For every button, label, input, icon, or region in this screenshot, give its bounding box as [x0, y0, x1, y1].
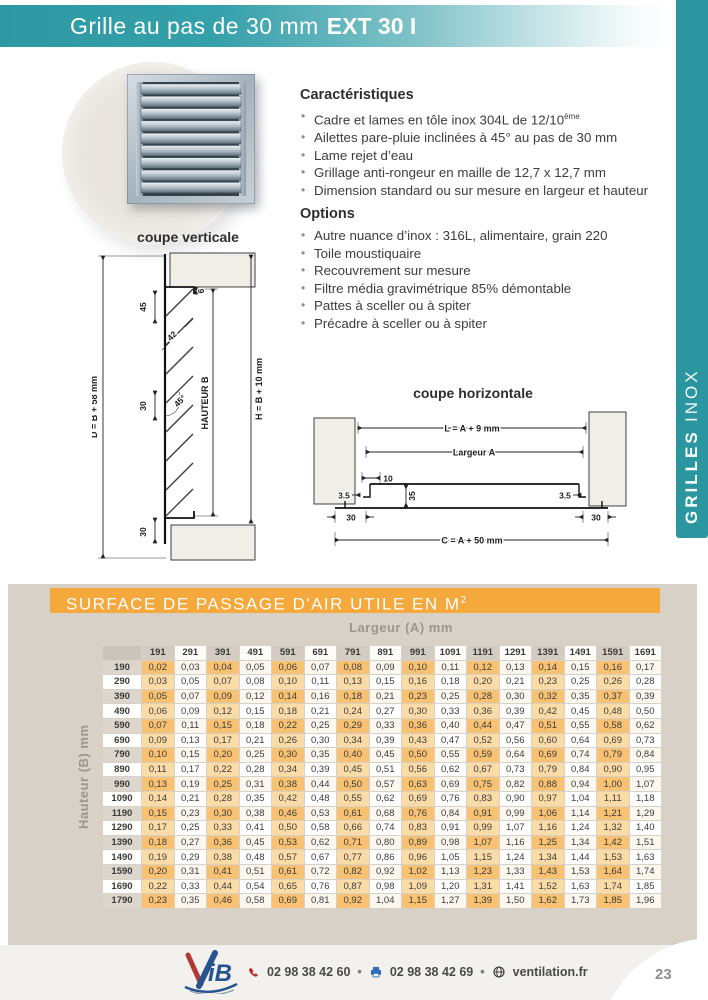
air-surface-cell: 0,08: [337, 661, 369, 675]
air-surface-cell: 0,96: [402, 850, 434, 864]
air-surface-cell: 0,79: [597, 748, 629, 762]
air-surface-cell: 0,58: [305, 821, 337, 835]
section-banner-sup: 2: [461, 595, 468, 606]
air-surface-cell: 0,61: [337, 807, 369, 821]
table-row: 2900,030,050,070,080,100,110,130,150,160…: [103, 675, 661, 689]
bullet-item: •Pattes à sceller ou à spiter: [300, 297, 680, 315]
bullet-item: •Dimension standard ou sur mesure en lar…: [300, 182, 680, 200]
air-surface-cell: 0,25: [175, 821, 207, 835]
air-surface-cell: 0,35: [565, 690, 597, 704]
air-surface-cell: 0,45: [370, 748, 402, 762]
row-header: 1390: [103, 836, 141, 850]
air-surface-cell: 1,74: [597, 880, 629, 894]
air-surface-cell: 1,27: [435, 894, 467, 908]
fax-icon: [369, 965, 383, 979]
air-surface-cell: 0,15: [370, 675, 402, 689]
air-surface-cell: 0,21: [500, 675, 532, 689]
table-row: 15900,200,310,410,510,610,720,820,921,02…: [103, 865, 661, 879]
air-surface-cell: 0,91: [467, 807, 499, 821]
air-surface-cell: 1,25: [532, 836, 564, 850]
air-surface-cell: 0,48: [597, 704, 629, 718]
table-row: 4900,060,090,120,150,180,210,240,270,300…: [103, 704, 661, 718]
table-row: 17900,230,350,460,580,690,810,921,041,15…: [103, 894, 661, 908]
table-row: 11900,150,230,300,380,460,530,610,680,76…: [103, 807, 661, 821]
side-tab-label-light: INOX: [682, 368, 701, 422]
air-surface-cell: 0,33: [175, 880, 207, 894]
air-surface-cell: 0,21: [240, 734, 272, 748]
air-surface-cell: 0,29: [337, 719, 369, 733]
air-surface-cell: 0,33: [207, 821, 239, 835]
air-surface-cell: 0,59: [467, 748, 499, 762]
air-surface-cell: 0,52: [467, 734, 499, 748]
air-surface-cell: 0,12: [207, 704, 239, 718]
row-header: 1290: [103, 821, 141, 835]
air-surface-cell: 0,03: [142, 675, 174, 689]
air-surface-cell: 0,09: [207, 690, 239, 704]
air-surface-cell: 0,25: [435, 690, 467, 704]
air-surface-cell: 0,13: [142, 777, 174, 791]
air-surface-cell: 1,40: [630, 821, 662, 835]
air-surface-cell: 0,08: [240, 675, 272, 689]
air-surface-cell: 0,38: [272, 777, 304, 791]
air-surface-cell: 0,35: [175, 894, 207, 908]
dim-label-outer-height: D = B + 58 mm: [92, 376, 99, 438]
air-surface-cell: 0,47: [435, 734, 467, 748]
air-surface-cell: 0,42: [272, 792, 304, 806]
bullet-item: •Toile moustiquaire: [300, 245, 680, 263]
table-row: 13900,180,270,360,450,530,620,710,800,89…: [103, 836, 661, 850]
air-surface-cell: 0,36: [207, 836, 239, 850]
air-surface-cell: 0,15: [565, 661, 597, 675]
air-surface-cell: 0,36: [467, 704, 499, 718]
bullet-icon: •: [301, 227, 305, 245]
air-surface-cell: 0,44: [467, 719, 499, 733]
air-surface-cell: 0,98: [435, 836, 467, 850]
air-surface-cell: 0,41: [240, 821, 272, 835]
air-surface-cell: 0,45: [240, 836, 272, 850]
page-number: 23: [655, 966, 672, 983]
air-surface-cell: 1,29: [630, 807, 662, 821]
row-header: 190: [103, 661, 141, 675]
air-surface-cell: 0,51: [532, 719, 564, 733]
air-surface-cell: 0,23: [142, 894, 174, 908]
dimension-lines: [98, 255, 251, 558]
air-surface-cell: 0,05: [175, 675, 207, 689]
table-corner-cell: [103, 646, 141, 660]
air-surface-cell: 0,40: [337, 748, 369, 762]
air-surface-cell: 0,39: [370, 734, 402, 748]
air-surface-cell: 1,07: [467, 836, 499, 850]
air-surface-cell: 0,53: [272, 836, 304, 850]
bullet-text: Ailettes pare-pluie inclinées à 45° au p…: [314, 130, 617, 145]
row-header: 1690: [103, 880, 141, 894]
horizontal-section-caption: coupe horizontale: [368, 385, 578, 401]
air-surface-cell: 1,16: [532, 821, 564, 835]
air-surface-cell: 0,92: [337, 894, 369, 908]
air-surface-cell: 0,15: [175, 748, 207, 762]
air-surface-cell: 0,17: [142, 821, 174, 835]
air-surface-cell: 0,73: [630, 734, 662, 748]
col-header: 1091: [435, 646, 467, 660]
col-header: 991: [402, 646, 434, 660]
air-surface-cell: 0,84: [565, 763, 597, 777]
air-surface-cell: 1,09: [402, 880, 434, 894]
row-header: 1190: [103, 807, 141, 821]
side-tab-label-bold: GRILLES: [682, 429, 701, 524]
air-surface-cell: 1,74: [630, 865, 662, 879]
dim-6: 6: [196, 288, 206, 293]
options-block: Options •Autre nuance d’inox : 316L, ali…: [300, 206, 680, 333]
air-surface-cell: 0,66: [337, 821, 369, 835]
bullet-item: •Cadre et lames en tôle inox 304L de 12/…: [300, 108, 680, 129]
air-surface-cell: 0,16: [305, 690, 337, 704]
bullet-item: •Lame rejet d’eau: [300, 147, 680, 165]
air-surface-cell: 0,55: [337, 792, 369, 806]
air-surface-cell: 0,25: [240, 748, 272, 762]
characteristics-title: Caractéristiques: [300, 87, 680, 103]
air-surface-cell: 0,30: [402, 704, 434, 718]
air-surface-cell: 0,34: [337, 734, 369, 748]
air-surface-cell: 1,11: [597, 792, 629, 806]
air-surface-cell: 1,51: [630, 836, 662, 850]
air-surface-cell: 0,35: [305, 748, 337, 762]
bullet-text: Pattes à sceller ou à spiter: [314, 298, 471, 313]
col-header: 291: [175, 646, 207, 660]
air-surface-cell: 0,64: [500, 748, 532, 762]
air-surface-cell: 0,19: [142, 850, 174, 864]
air-surface-cell: 0,57: [370, 777, 402, 791]
air-surface-cell: 0,19: [175, 777, 207, 791]
bullet-icon: •: [301, 164, 305, 182]
air-surface-cell: 1,63: [630, 850, 662, 864]
air-surface-cell: 0,28: [207, 792, 239, 806]
air-surface-cell: 0,26: [272, 734, 304, 748]
logo-ib-text: iB: [208, 960, 232, 987]
row-header: 1090: [103, 792, 141, 806]
air-surface-cell: 0,10: [402, 661, 434, 675]
air-surface-cell: 1,21: [597, 807, 629, 821]
air-surface-cell: 0,83: [402, 821, 434, 835]
row-header: 490: [103, 704, 141, 718]
air-surface-cell: 0,38: [240, 807, 272, 821]
air-surface-cell: 0,69: [272, 894, 304, 908]
air-surface-cell: 0,07: [175, 690, 207, 704]
air-surface-cell: 0,10: [272, 675, 304, 689]
air-surface-cell: 0,76: [305, 880, 337, 894]
air-surface-cell: 0,53: [305, 807, 337, 821]
air-surface-cell: 1,96: [630, 894, 662, 908]
air-surface-cell: 0,76: [402, 807, 434, 821]
air-surface-cell: 0,67: [467, 763, 499, 777]
air-surface-cell: 1,34: [565, 836, 597, 850]
air-surface-cell: 0,67: [305, 850, 337, 864]
air-surface-cell: 0,56: [402, 763, 434, 777]
air-surface-cell: 0,15: [142, 807, 174, 821]
dim-42: 42: [165, 329, 179, 343]
bullet-icon: •: [301, 245, 305, 263]
air-surface-cell: 0,50: [630, 704, 662, 718]
dim-3-5-left: 3.5: [338, 491, 350, 501]
air-surface-cell: 0,14: [142, 792, 174, 806]
table-row: 7900,100,150,200,250,300,350,400,450,500…: [103, 748, 661, 762]
air-surface-cell: 0,69: [402, 792, 434, 806]
air-surface-cell: 0,98: [370, 880, 402, 894]
air-surface-cell: 1,44: [565, 850, 597, 864]
air-surface-cell: 0,63: [402, 777, 434, 791]
row-header: 1790: [103, 894, 141, 908]
air-surface-cell: 0,95: [630, 763, 662, 777]
air-surface-cell: 1,62: [532, 894, 564, 908]
air-surface-cell: 0,38: [207, 850, 239, 864]
air-surface-cell: 1,14: [565, 807, 597, 821]
air-surface-cell: 1,32: [597, 821, 629, 835]
globe-icon: [492, 965, 506, 979]
footer-separator: •: [357, 965, 361, 979]
air-surface-cell: 0,31: [175, 865, 207, 879]
air-surface-cell: 0,51: [370, 763, 402, 777]
air-surface-cell: 0,54: [240, 880, 272, 894]
air-surface-cell: 0,16: [597, 661, 629, 675]
characteristics-list: •Cadre et lames en tôle inox 304L de 12/…: [300, 108, 680, 199]
air-surface-cell: 1,53: [597, 850, 629, 864]
air-surface-cell: 0,55: [565, 719, 597, 733]
bullet-icon: •: [301, 147, 305, 165]
air-surface-cell: 1,02: [402, 865, 434, 879]
air-surface-cell: 1,24: [565, 821, 597, 835]
dim-label-h: H = B + 10 mm: [254, 358, 264, 420]
air-surface-cell: 0,39: [630, 690, 662, 704]
air-surface-cell: 0,80: [370, 836, 402, 850]
air-surface-cell: 1,13: [435, 865, 467, 879]
air-surface-cell: 1,06: [532, 807, 564, 821]
footer-separator-2: •: [480, 965, 484, 979]
catalog-page: Grille au pas de 30 mmEXT 30 I GRILLES I…: [0, 0, 708, 1000]
air-surface-cell: 0,23: [402, 690, 434, 704]
air-surface-cell: 0,12: [467, 661, 499, 675]
air-surface-cell: 1,31: [467, 880, 499, 894]
air-surface-cell: 1,00: [597, 777, 629, 791]
bullet-text: Recouvrement sur mesure: [314, 263, 471, 278]
air-surface-cell: 0,83: [467, 792, 499, 806]
air-surface-cell: 0,62: [435, 763, 467, 777]
air-surface-cell: 0,82: [337, 865, 369, 879]
air-surface-cell: 0,58: [597, 719, 629, 733]
dim-10: 10: [383, 474, 393, 484]
row-header: 290: [103, 675, 141, 689]
bullet-text: Lame rejet d’eau: [314, 148, 413, 163]
air-surface-cell: 0,15: [240, 704, 272, 718]
air-surface-cell: 0,22: [142, 880, 174, 894]
table-row: 9900,130,190,250,310,380,440,500,570,630…: [103, 777, 661, 791]
air-surface-cell: 1,15: [402, 894, 434, 908]
air-surface-cell: 0,74: [370, 821, 402, 835]
air-surface-cell: 0,86: [370, 850, 402, 864]
air-surface-cell: 0,74: [565, 748, 597, 762]
characteristics-block: Caractéristiques •Cadre et lames en tôle…: [300, 87, 680, 199]
col-header: 591: [272, 646, 304, 660]
air-surface-cell: 0,43: [402, 734, 434, 748]
air-surface-cell: 0,36: [402, 719, 434, 733]
air-surface-cell: 0,64: [565, 734, 597, 748]
table-row: 6900,090,130,170,210,260,300,340,390,430…: [103, 734, 661, 748]
air-surface-cell: 0,28: [467, 690, 499, 704]
air-surface-cell: 0,13: [175, 734, 207, 748]
air-surface-cell: 0,29: [175, 850, 207, 864]
dim-label-largeur-a: Largeur A: [453, 448, 496, 458]
dim-label-hauteur-b: HAUTEUR B: [200, 376, 210, 429]
air-surface-cell: 0,11: [305, 675, 337, 689]
air-surface-cell: 0,28: [240, 763, 272, 777]
air-surface-cell: 0,47: [500, 719, 532, 733]
air-surface-cell: 0,90: [500, 792, 532, 806]
row-axis-label: Hauteur (B) mm: [76, 646, 102, 908]
air-surface-cell: 0,77: [337, 850, 369, 864]
phone-icon: [246, 965, 260, 979]
vertical-section-diagram: D = B + 58 mm HAUTEUR B H = B + 10 mm 45…: [92, 246, 282, 566]
footer-phone: 02 98 38 42 60: [267, 965, 350, 979]
air-surface-cell: 0,10: [142, 748, 174, 762]
air-surface-cell: 0,11: [175, 719, 207, 733]
air-surface-cell: 0,21: [305, 704, 337, 718]
dim-35: 35: [407, 491, 417, 501]
air-surface-cell: 0,84: [630, 748, 662, 762]
col-header: 1491: [565, 646, 597, 660]
air-surface-cell: 0,21: [370, 690, 402, 704]
bullet-icon: •: [301, 108, 305, 126]
air-surface-cell: 0,27: [370, 704, 402, 718]
air-surface-cell: 0,06: [142, 704, 174, 718]
air-surface-cell: 0,84: [435, 807, 467, 821]
table-row: 3900,050,070,090,120,140,160,180,210,230…: [103, 690, 661, 704]
dim-3-5-right: 3.5: [559, 491, 571, 501]
air-surface-cell: 0,99: [467, 821, 499, 835]
air-surface-cell: 0,25: [565, 675, 597, 689]
col-header: 1691: [630, 646, 662, 660]
air-surface-cell: 0,58: [240, 894, 272, 908]
air-surface-cell: 0,30: [207, 807, 239, 821]
air-surface-cell: 0,26: [597, 675, 629, 689]
row-header: 990: [103, 777, 141, 791]
air-surface-cell: 0,22: [207, 763, 239, 777]
air-surface-cell: 0,56: [500, 734, 532, 748]
side-tab-label: GRILLES INOX: [682, 368, 702, 524]
air-table: 1912913914915916917918919911091119112911…: [102, 645, 662, 909]
bullet-item: •Grillage anti-rongeur en maille de 12,7…: [300, 164, 680, 182]
bullet-item: •Recouvrement sur mesure: [300, 262, 680, 280]
air-surface-cell: 1,63: [565, 880, 597, 894]
air-surface-cell: 0,79: [532, 763, 564, 777]
bullet-text: Dimension standard ou sur mesure en larg…: [314, 183, 648, 198]
air-surface-cell: 0,88: [532, 777, 564, 791]
air-surface-cell: 0,05: [142, 690, 174, 704]
air-surface-cell: 0,30: [272, 748, 304, 762]
air-surface-cell: 0,18: [240, 719, 272, 733]
air-surface-cell: 0,18: [142, 836, 174, 850]
air-surface-cell: 0,39: [305, 763, 337, 777]
air-surface-cell: 0,46: [272, 807, 304, 821]
air-surface-cell: 0,91: [435, 821, 467, 835]
horizontal-section-diagram: L = A + 9 mm Largeur A 10 3.5 3.5 35 30 …: [306, 404, 658, 566]
bullet-text: Autre nuance d’inox : 316L, alimentaire,…: [314, 228, 607, 243]
vib-logo: iB: [182, 950, 240, 994]
air-surface-cell: 0,20: [207, 748, 239, 762]
air-surface-cell: 0,30: [500, 690, 532, 704]
dim-30-bottom: 30: [138, 527, 148, 537]
air-surface-cell: 1,24: [500, 850, 532, 864]
air-surface-cell: 0,37: [597, 690, 629, 704]
page-title: Grille au pas de 30 mmEXT 30 I: [70, 5, 416, 47]
footer-fax: 02 98 38 42 69: [390, 965, 473, 979]
air-surface-cell: 0,11: [435, 661, 467, 675]
dim-label-C: C = A + 50 mm: [441, 536, 502, 546]
table-row: 1900,020,030,040,050,060,070,080,090,100…: [103, 661, 661, 675]
col-header: 791: [337, 646, 369, 660]
table-row: 5900,070,110,150,180,220,250,290,330,360…: [103, 719, 661, 733]
vertical-section-caption: coupe verticale: [98, 229, 278, 245]
air-surface-cell: 0,05: [240, 661, 272, 675]
row-header: 590: [103, 719, 141, 733]
air-surface-cell: 0,14: [272, 690, 304, 704]
row-header: 1490: [103, 850, 141, 864]
air-surface-cell: 1,20: [435, 880, 467, 894]
air-surface-cell: 0,25: [207, 777, 239, 791]
table-row: 10900,140,210,280,350,420,480,550,620,69…: [103, 792, 661, 806]
dim-45: 45: [138, 302, 148, 312]
air-surface-cell: 0,28: [630, 675, 662, 689]
bullet-icon: •: [301, 129, 305, 147]
bullet-text: Grillage anti-rongeur en maille de 12,7 …: [314, 165, 606, 180]
air-surface-cell: 0,69: [597, 734, 629, 748]
air-surface-cell: 0,72: [305, 865, 337, 879]
air-surface-cell: 0,76: [435, 792, 467, 806]
air-surface-cell: 0,34: [272, 763, 304, 777]
air-surface-cell: 0,60: [532, 734, 564, 748]
air-surface-cell: 0,07: [305, 661, 337, 675]
air-surface-cell: 0,62: [370, 792, 402, 806]
bullet-icon: •: [301, 262, 305, 280]
bullet-item: •Autre nuance d’inox : 316L, alimentaire…: [300, 227, 680, 245]
air-surface-cell: 0,81: [305, 894, 337, 908]
air-surface-cell: 0,94: [565, 777, 597, 791]
air-surface-cell: 1,33: [500, 865, 532, 879]
air-surface-cell: 0,42: [532, 704, 564, 718]
air-surface-cell: 1,73: [565, 894, 597, 908]
air-surface-cell: 1,18: [630, 792, 662, 806]
air-surface-cell: 0,62: [305, 836, 337, 850]
air-surface-cell: 0,04: [207, 661, 239, 675]
table-row: 16900,220,330,440,540,650,760,870,981,09…: [103, 880, 661, 894]
col-header: 1391: [532, 646, 564, 660]
air-surface-cell: 0,75: [467, 777, 499, 791]
bullet-item: •Filtre média gravimétrique 85% démontab…: [300, 280, 680, 298]
air-surface-cell: 0,45: [565, 704, 597, 718]
air-surface-cell: 1,16: [500, 836, 532, 850]
bullet-text: Toile moustiquaire: [314, 246, 421, 261]
air-surface-cell: 0,24: [337, 704, 369, 718]
row-header: 890: [103, 763, 141, 777]
air-surface-cell: 1,04: [565, 792, 597, 806]
air-surface-cell: 0,89: [402, 836, 434, 850]
air-surface-cell: 0,07: [207, 675, 239, 689]
row-header: 1590: [103, 865, 141, 879]
air-surface-cell: 0,57: [272, 850, 304, 864]
air-surface-cell: 0,71: [337, 836, 369, 850]
product-photo-grille: [127, 74, 255, 204]
air-surface-cell: 1,05: [435, 850, 467, 864]
dim-label-L: L = A + 9 mm: [444, 424, 499, 434]
col-header: 1591: [597, 646, 629, 660]
bullet-icon: •: [301, 182, 305, 200]
